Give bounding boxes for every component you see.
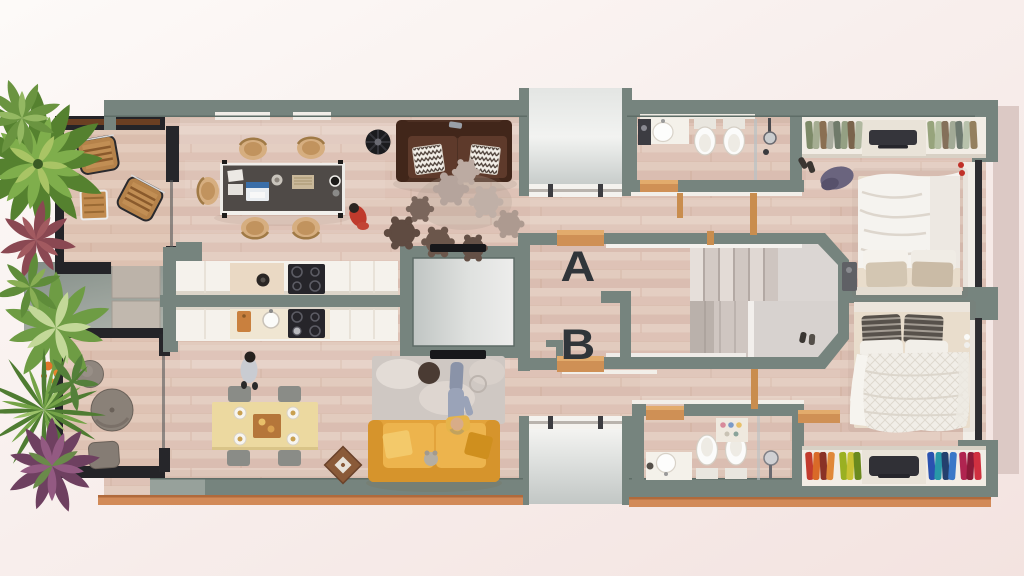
svg-text:A: A bbox=[561, 242, 596, 290]
svg-text:B: B bbox=[561, 320, 596, 368]
